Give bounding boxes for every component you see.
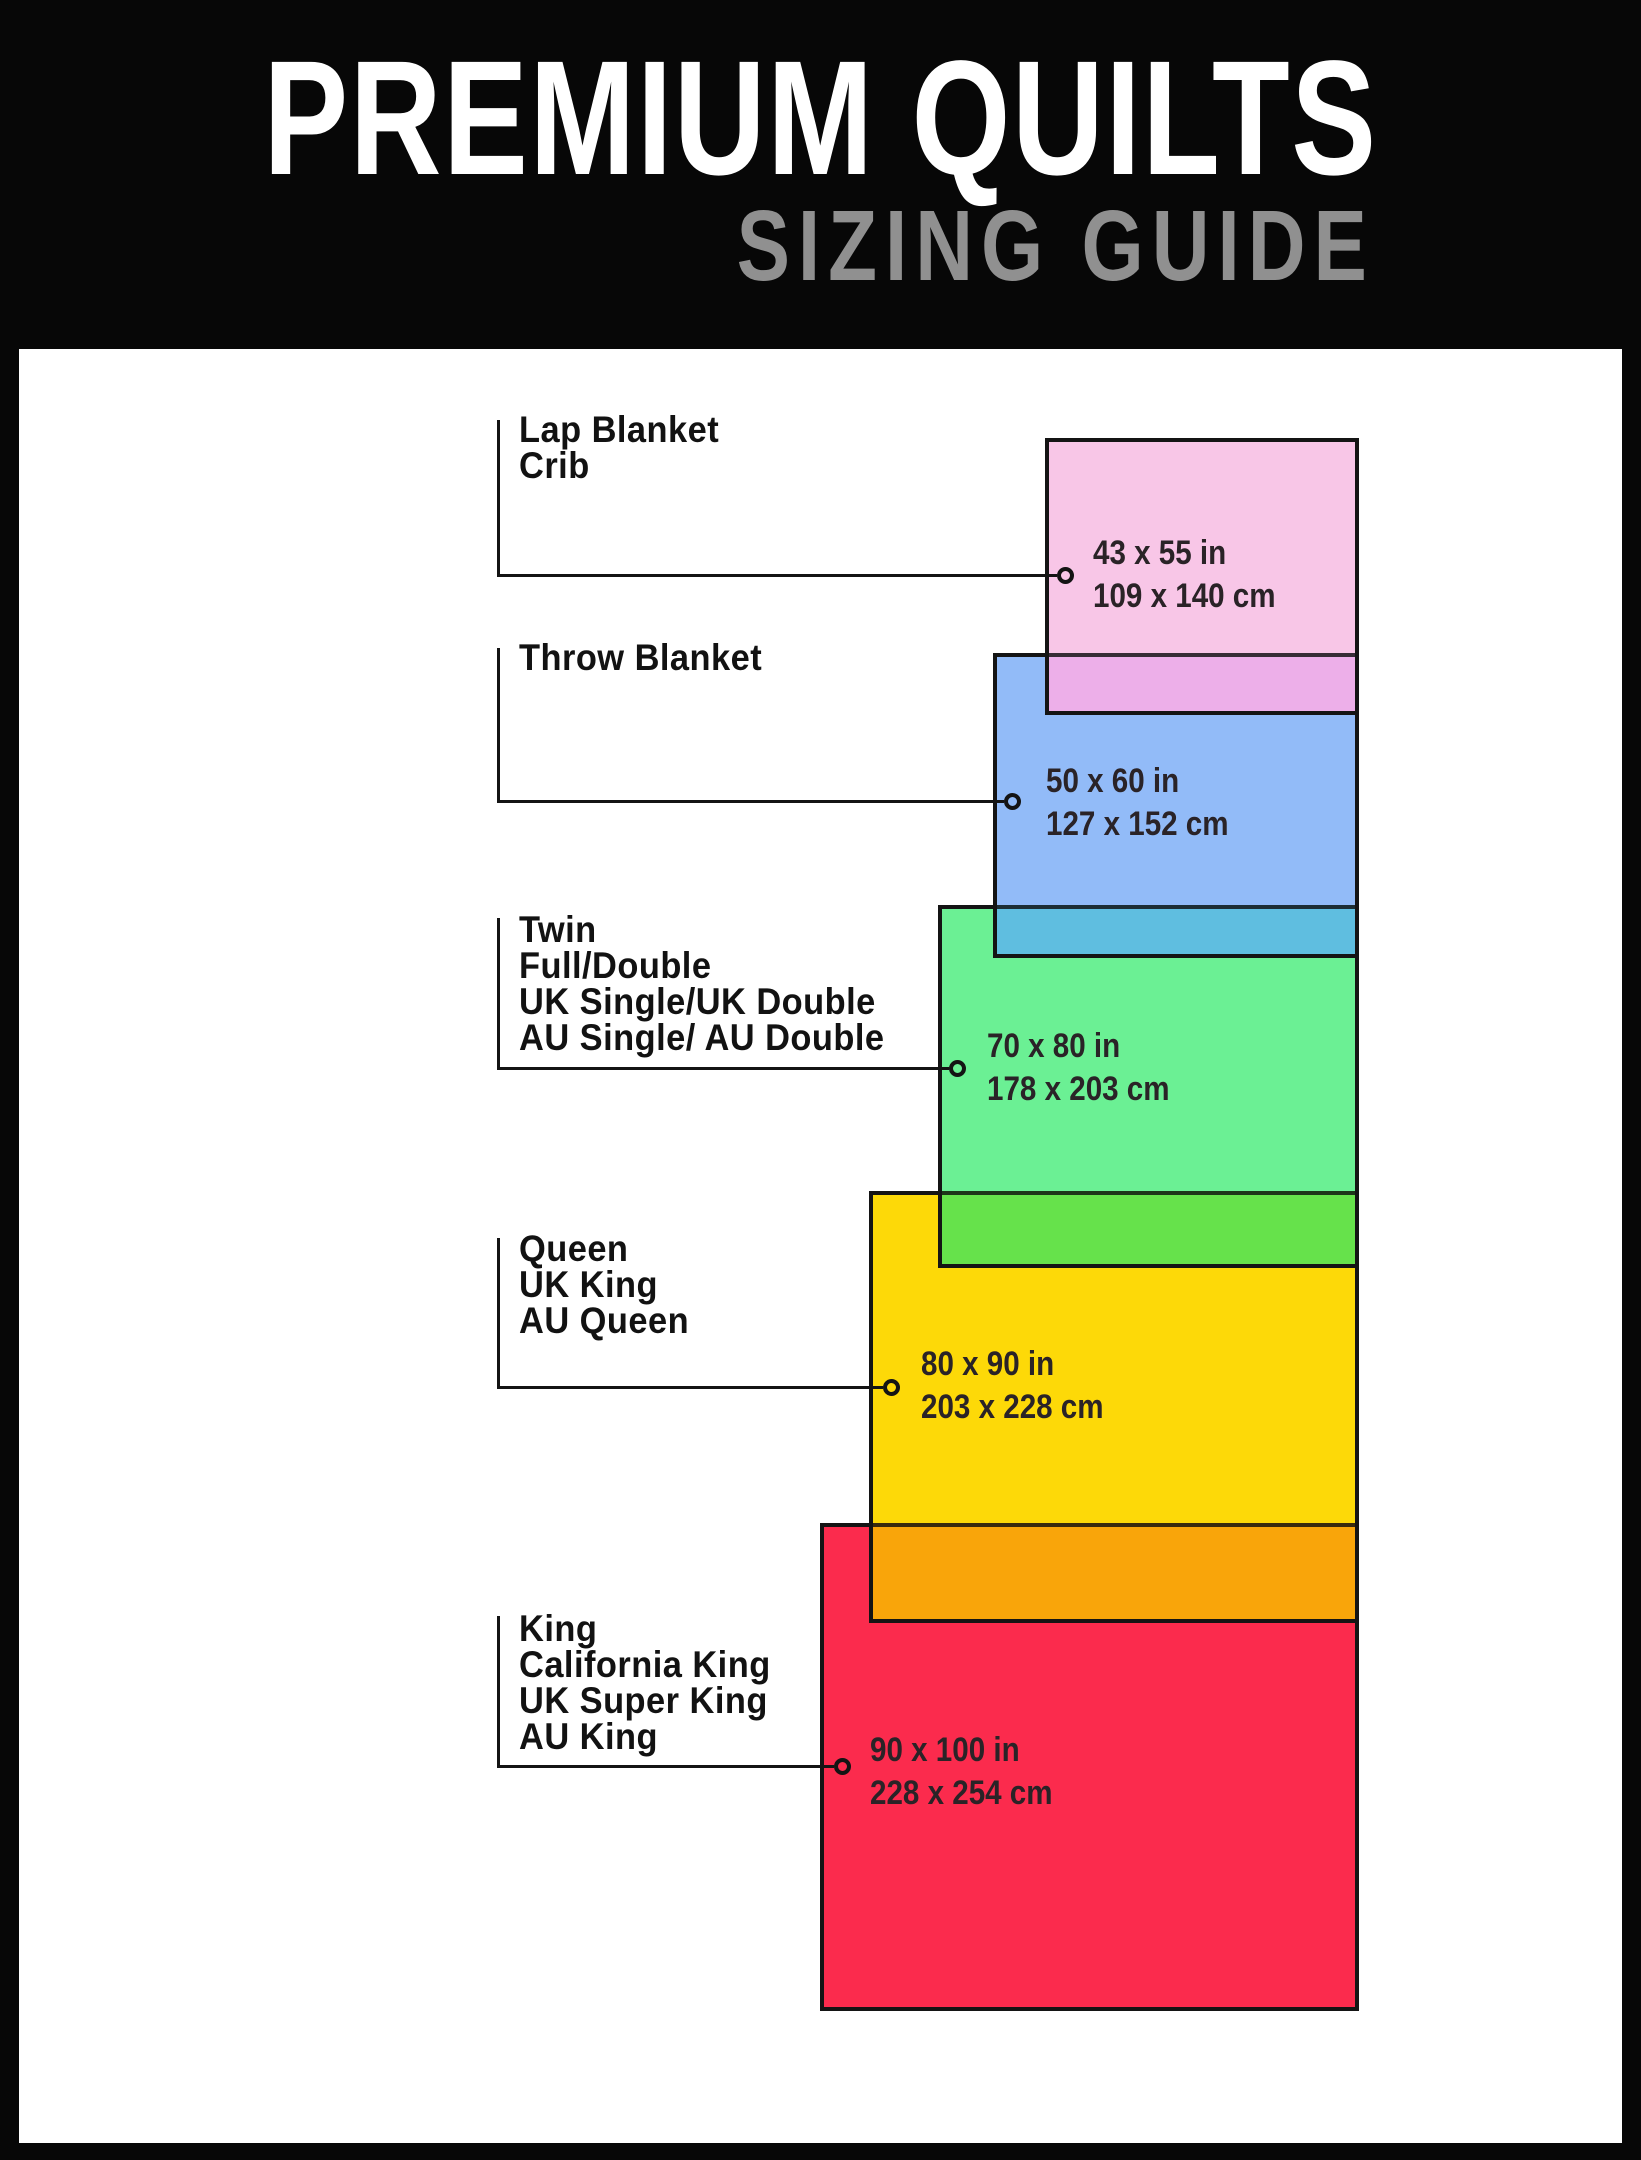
overlap-lap-throw [1049, 653, 1355, 711]
label-line: Twin [519, 912, 885, 948]
size-label-lap-blanket-crib: Lap Blanket Crib [519, 412, 719, 484]
page-subtitle: SIZING GUIDE [737, 196, 1375, 296]
dimensions-twin: 70 x 80 in 178 x 203 cm [987, 1025, 1170, 1111]
dimensions-cm: 178 x 203 cm [987, 1068, 1170, 1111]
dimensions-king: 90 x 100 in 228 x 254 cm [870, 1729, 1053, 1815]
label-line: Full/Double [519, 948, 885, 984]
size-label-throw-blanket: Throw Blanket [519, 640, 762, 676]
dimensions-lap-blanket-crib: 43 x 55 in 109 x 140 cm [1093, 532, 1276, 618]
label-line: AU King [519, 1719, 771, 1755]
label-line: Crib [519, 448, 719, 484]
dimensions-queen: 80 x 90 in 203 x 228 cm [921, 1343, 1104, 1429]
marker-circle-queen [883, 1379, 900, 1396]
label-line: King [519, 1611, 771, 1647]
size-label-queen: Queen UK King AU Queen [519, 1231, 689, 1339]
size-label-twin: Twin Full/Double UK Single/UK Double AU … [519, 912, 885, 1056]
label-line: Lap Blanket [519, 412, 719, 448]
marker-circle-king [834, 1758, 851, 1775]
dimensions-inches: 90 x 100 in [870, 1729, 1053, 1772]
label-line: California King [519, 1647, 771, 1683]
dimensions-cm: 127 x 152 cm [1046, 803, 1229, 846]
label-line: UK Super King [519, 1683, 771, 1719]
size-label-king: King California King UK Super King AU Ki… [519, 1611, 771, 1755]
marker-circle-lap-blanket [1057, 567, 1074, 584]
dimensions-cm: 228 x 254 cm [870, 1772, 1053, 1815]
dimensions-cm: 109 x 140 cm [1093, 575, 1276, 618]
page-title: PREMIUM QUILTS [181, 36, 1461, 199]
label-line: UK King [519, 1267, 689, 1303]
dimensions-throw-blanket: 50 x 60 in 127 x 152 cm [1046, 760, 1229, 846]
marker-circle-throw-blanket [1004, 793, 1021, 810]
dimensions-inches: 43 x 55 in [1093, 532, 1276, 575]
overlap-queen-king [873, 1523, 1355, 1619]
overlap-throw-twin [997, 905, 1355, 954]
label-line: Throw Blanket [519, 640, 762, 676]
dimensions-inches: 70 x 80 in [987, 1025, 1170, 1068]
label-line: UK Single/UK Double [519, 984, 885, 1020]
overlap-twin-queen [942, 1191, 1355, 1264]
dimensions-inches: 50 x 60 in [1046, 760, 1229, 803]
label-line: AU Queen [519, 1303, 689, 1339]
label-line: Queen [519, 1231, 689, 1267]
label-line: AU Single/ AU Double [519, 1020, 885, 1056]
dimensions-inches: 80 x 90 in [921, 1343, 1104, 1386]
dimensions-cm: 203 x 228 cm [921, 1386, 1104, 1429]
header: PREMIUM QUILTS SIZING GUIDE [0, 0, 1641, 349]
marker-circle-twin [949, 1060, 966, 1077]
